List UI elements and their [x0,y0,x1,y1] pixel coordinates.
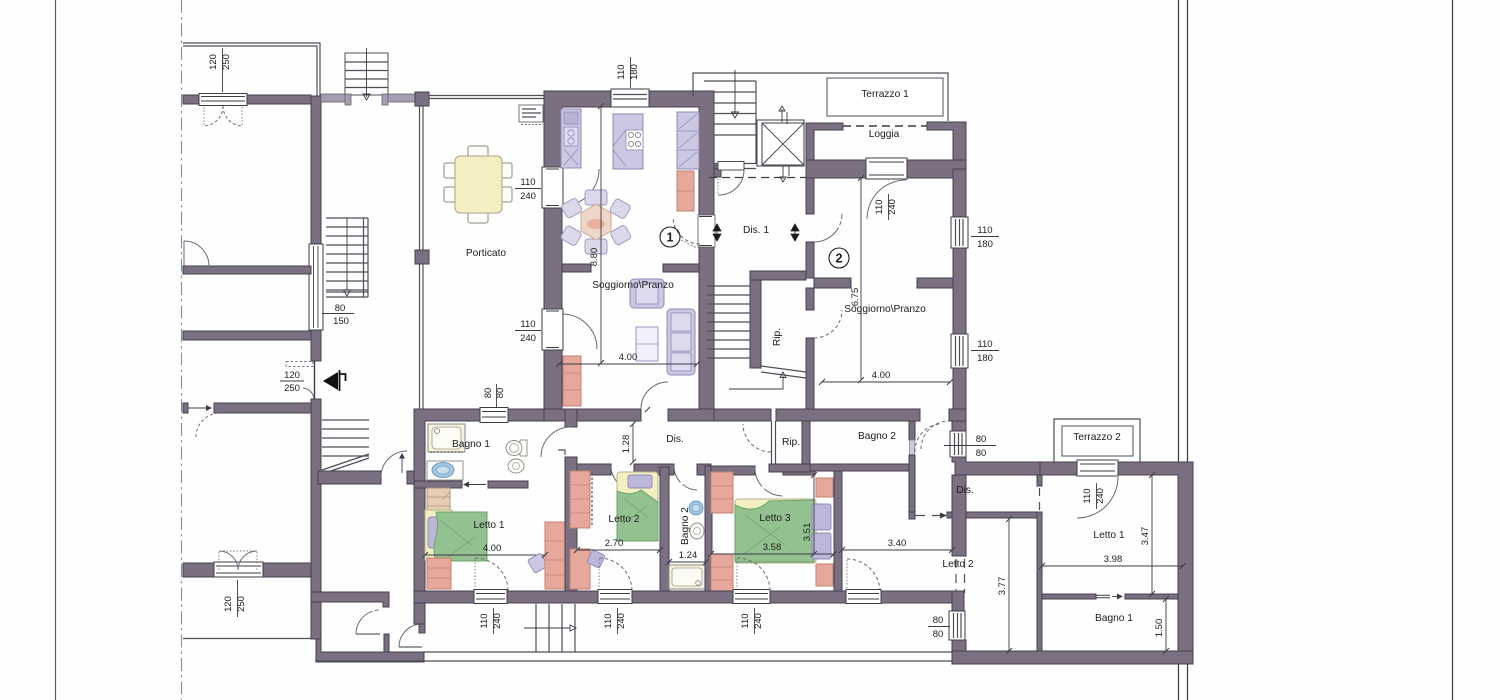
svg-text:110: 110 [479,613,490,628]
svg-text:Loggia: Loggia [869,129,900,140]
svg-text:180: 180 [977,239,993,250]
svg-text:3.47: 3.47 [1140,527,1151,546]
svg-text:3.77: 3.77 [997,577,1008,596]
svg-text:Dis. 1: Dis. 1 [743,225,769,236]
svg-text:2.70: 2.70 [605,538,624,549]
svg-text:3.40: 3.40 [888,538,907,549]
svg-text:Soggiorno\Pranzo: Soggiorno\Pranzo [592,280,674,291]
svg-text:80: 80 [335,303,346,314]
svg-text:110: 110 [977,339,992,350]
svg-text:Letto 3: Letto 3 [759,513,790,524]
svg-text:3.58: 3.58 [763,542,782,553]
svg-text:Letto 2: Letto 2 [608,514,639,525]
svg-text:Dis.: Dis. [666,434,684,445]
svg-text:240: 240 [520,191,536,202]
svg-text:Bagno 2: Bagno 2 [680,507,691,545]
svg-text:110: 110 [1082,488,1093,503]
svg-text:Bagno 1: Bagno 1 [452,439,490,450]
svg-text:Rip.: Rip. [772,328,783,346]
svg-text:240: 240 [520,333,536,344]
svg-text:80: 80 [933,629,944,640]
svg-text:4.00: 4.00 [619,352,638,363]
svg-text:150: 150 [333,316,349,327]
svg-text:120: 120 [284,370,300,381]
svg-text:Porticato: Porticato [466,248,507,259]
svg-text:110: 110 [603,613,614,628]
svg-text:1: 1 [667,231,674,245]
svg-text:Soggiorno\Pranzo: Soggiorno\Pranzo [844,304,926,315]
svg-text:Terrazzo 2: Terrazzo 2 [1073,432,1121,443]
svg-text:110: 110 [977,225,992,236]
svg-text:Bagno 1: Bagno 1 [1095,613,1133,624]
svg-text:110: 110 [616,64,627,79]
svg-text:Bagno 2: Bagno 2 [858,431,896,442]
svg-text:1.50: 1.50 [1154,619,1165,638]
svg-text:Terrazzo 1: Terrazzo 1 [861,89,909,100]
svg-text:110: 110 [520,319,535,330]
svg-text:80: 80 [976,448,987,459]
svg-text:80: 80 [933,615,944,626]
svg-text:1.24: 1.24 [679,550,698,561]
svg-text:4.00: 4.00 [872,370,891,381]
svg-text:8.80: 8.80 [589,248,600,267]
svg-text:80: 80 [483,388,494,399]
svg-text:110: 110 [740,613,751,628]
svg-text:110: 110 [520,177,535,188]
svg-text:Letto 2: Letto 2 [942,559,973,570]
svg-text:2: 2 [836,252,843,266]
svg-text:4.00: 4.00 [483,543,502,554]
svg-text:250: 250 [284,383,300,394]
svg-text:Letto 1: Letto 1 [1093,530,1124,541]
svg-text:120: 120 [208,54,219,70]
svg-text:110: 110 [874,199,885,214]
svg-text:3.98: 3.98 [1104,554,1123,565]
svg-text:3.51: 3.51 [802,523,813,542]
svg-text:Dis.: Dis. [956,485,974,496]
svg-text:1.28: 1.28 [621,435,632,454]
svg-text:180: 180 [977,353,993,364]
svg-text:80: 80 [976,434,987,445]
svg-text:120: 120 [223,596,234,612]
svg-text:Letto 1: Letto 1 [473,520,504,531]
svg-text:Rip.: Rip. [782,437,800,448]
